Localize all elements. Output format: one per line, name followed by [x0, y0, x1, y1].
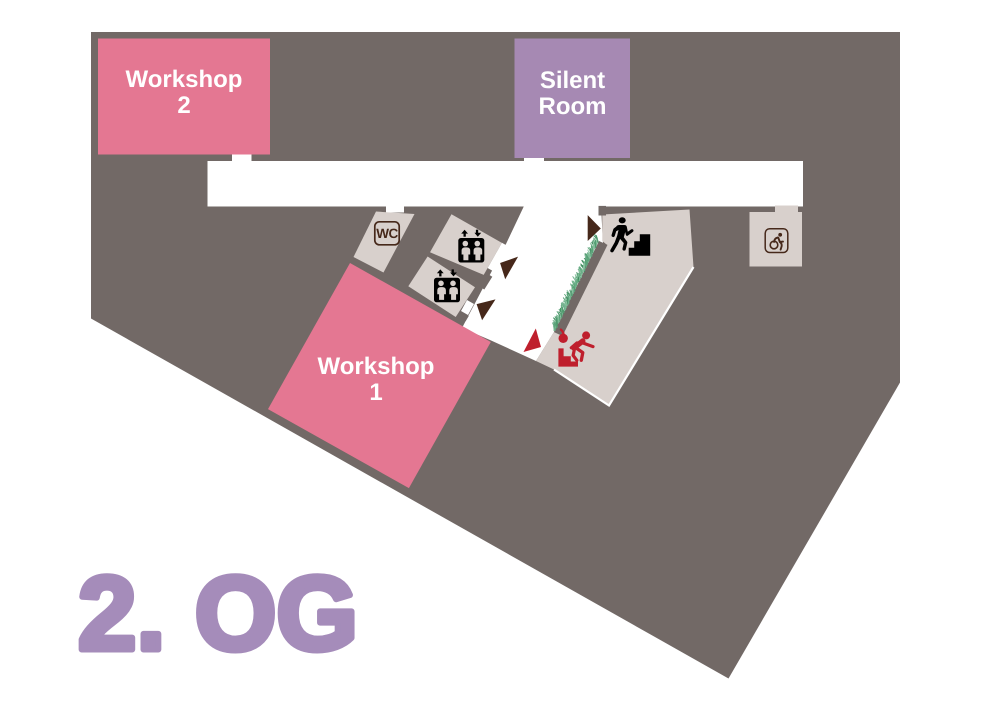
svg-text:Workshop: Workshop: [318, 353, 435, 380]
svg-text:Room: Room: [539, 93, 607, 120]
svg-text:WC: WC: [376, 226, 398, 241]
svg-text:Silent: Silent: [540, 67, 605, 94]
svg-text:Workshop: Workshop: [126, 66, 243, 93]
svg-text:1: 1: [369, 379, 382, 406]
svg-text:2: 2: [177, 92, 190, 119]
svg-text:2. OG: 2. OG: [78, 556, 358, 673]
